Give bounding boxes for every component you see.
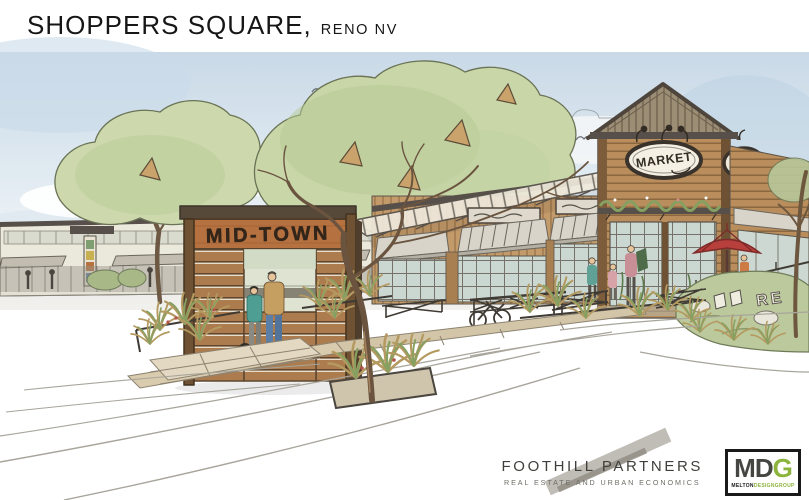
mdg-sub-left: MELTON bbox=[731, 483, 753, 489]
page-title: SHOPPERS SQUARE, RENO NV bbox=[27, 10, 398, 41]
foothill-partners-logo: FOOTHILL PARTNERS REAL ESTATE AND URBAN … bbox=[496, 454, 709, 491]
mdg-g: G bbox=[773, 453, 792, 483]
mdg-subtext: MELTONDESIGNGROUP bbox=[731, 483, 795, 489]
foothill-tagline: REAL ESTATE AND URBAN ECONOMICS bbox=[502, 478, 703, 487]
footer-logos: FOOTHILL PARTNERS REAL ESTATE AND URBAN … bbox=[496, 449, 801, 496]
mdg-initials: MDG bbox=[731, 455, 795, 481]
mdg-logo: MDG MELTONDESIGNGROUP bbox=[725, 449, 801, 496]
market-oval-sign: MARKET bbox=[627, 142, 701, 178]
mdg-sub-right: DESIGNGROUP bbox=[754, 483, 795, 489]
architectural-rendering: MARKET bbox=[0, 0, 809, 500]
project-location: RENO NV bbox=[321, 22, 398, 38]
foothill-name: FOOTHILL PARTNERS bbox=[502, 458, 703, 475]
rendering-page: SHOPPERS SQUARE, RENO NV bbox=[0, 0, 809, 500]
midtown-sign-text: MID-TOWN bbox=[206, 222, 331, 247]
mdg-md: MD bbox=[734, 453, 772, 483]
project-title: SHOPPERS SQUARE, bbox=[27, 10, 312, 41]
midtown-sign-band: MID-TOWN bbox=[186, 219, 350, 249]
